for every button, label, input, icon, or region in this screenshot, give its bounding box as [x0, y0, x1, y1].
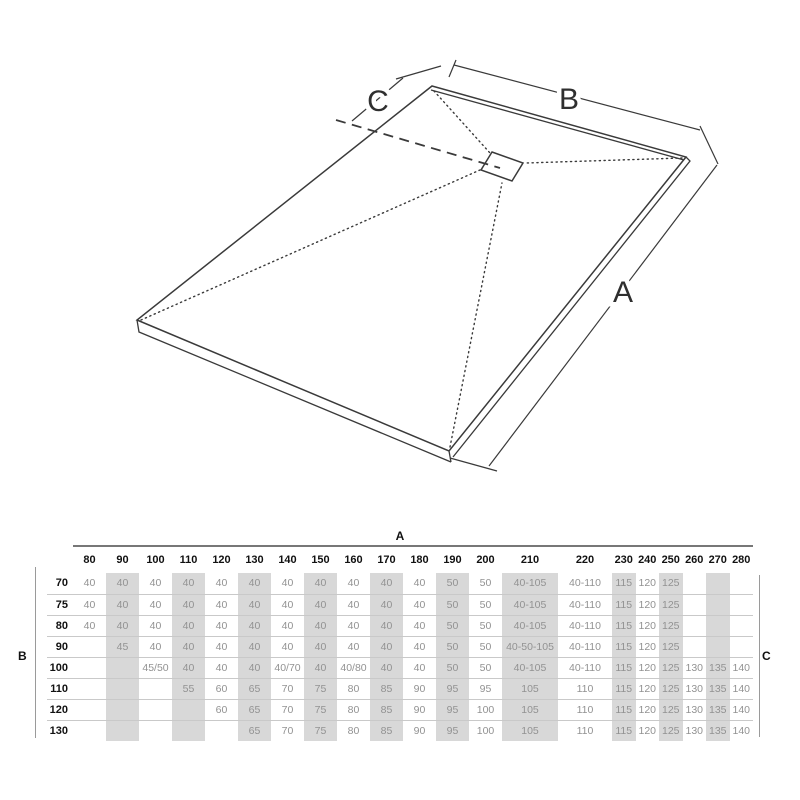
cell-75-110: 40 — [172, 594, 205, 615]
cell-110-180: 90 — [403, 678, 436, 699]
cell-70-210: 40-105 — [502, 573, 558, 594]
column-header-220: 220 — [558, 546, 612, 573]
cell-120-100 — [139, 699, 172, 720]
column-header-150: 150 — [304, 546, 337, 573]
cell-100-220: 40-110 — [558, 657, 612, 678]
dimension-b-tick — [449, 60, 456, 77]
cell-90-130: 40 — [238, 636, 271, 657]
cell-75-140: 40 — [271, 594, 304, 615]
cell-100-190: 50 — [436, 657, 469, 678]
cell-70-230: 115 — [612, 573, 636, 594]
cell-130-270: 135 — [706, 720, 730, 741]
cell-90-240: 120 — [636, 636, 660, 657]
cell-90-210: 40-50-105 — [502, 636, 558, 657]
column-header-100: 100 — [139, 546, 172, 573]
column-header-140: 140 — [271, 546, 304, 573]
column-header-280: 280 — [730, 546, 754, 573]
cell-110-170: 85 — [370, 678, 403, 699]
cell-80-280 — [730, 615, 754, 636]
cell-80-150: 40 — [304, 615, 337, 636]
cell-130-90 — [106, 720, 139, 741]
cell-110-160: 80 — [337, 678, 370, 699]
cell-110-220: 110 — [558, 678, 612, 699]
cell-70-190: 50 — [436, 573, 469, 594]
cell-80-170: 40 — [370, 615, 403, 636]
cell-130-200: 100 — [469, 720, 502, 741]
cell-90-170: 40 — [370, 636, 403, 657]
cell-120-250: 125 — [659, 699, 683, 720]
cell-80-130: 40 — [238, 615, 271, 636]
row-header-70: 70 — [47, 573, 73, 594]
column-header-80: 80 — [73, 546, 106, 573]
cell-130-110 — [172, 720, 205, 741]
cell-110-270: 135 — [706, 678, 730, 699]
cell-100-180: 40 — [403, 657, 436, 678]
cell-120-220: 110 — [558, 699, 612, 720]
cell-90-250: 125 — [659, 636, 683, 657]
cell-120-160: 80 — [337, 699, 370, 720]
diagram-label-b: B — [559, 83, 579, 116]
table-row-90: 9045404040404040404040505040-50-10540-11… — [47, 636, 753, 657]
cell-70-250: 125 — [659, 573, 683, 594]
cell-100-270: 135 — [706, 657, 730, 678]
cell-70-220: 40-110 — [558, 573, 612, 594]
table-row-100: 10045/5040404040/704040/804040505040-105… — [47, 657, 753, 678]
table-header-row: 8090100110120130140150160170180190200210… — [47, 546, 753, 573]
cell-90-260 — [683, 636, 707, 657]
diagram-label-c: C — [367, 85, 389, 118]
cell-75-80: 40 — [73, 594, 106, 615]
cell-75-240: 120 — [636, 594, 660, 615]
cell-120-120: 60 — [205, 699, 238, 720]
cell-75-90: 40 — [106, 594, 139, 615]
cell-100-150: 40 — [304, 657, 337, 678]
cell-80-110: 40 — [172, 615, 205, 636]
cell-75-260 — [683, 594, 707, 615]
column-header-200: 200 — [469, 546, 502, 573]
cell-110-110: 55 — [172, 678, 205, 699]
cell-130-260: 130 — [683, 720, 707, 741]
table-row-75: 754040404040404040404040505040-10540-110… — [47, 594, 753, 615]
cell-130-210: 105 — [502, 720, 558, 741]
column-header-160: 160 — [337, 546, 370, 573]
cell-120-170: 85 — [370, 699, 403, 720]
cell-130-80 — [73, 720, 106, 741]
cell-110-80 — [73, 678, 106, 699]
cell-100-80 — [73, 657, 106, 678]
cell-70-170: 40 — [370, 573, 403, 594]
cell-70-200: 50 — [469, 573, 502, 594]
cell-100-250: 125 — [659, 657, 683, 678]
table-corner-cell — [47, 546, 73, 573]
cell-75-250: 125 — [659, 594, 683, 615]
cell-100-90 — [106, 657, 139, 678]
cell-90-110: 40 — [172, 636, 205, 657]
cell-110-150: 75 — [304, 678, 337, 699]
cell-130-170: 85 — [370, 720, 403, 741]
column-header-130: 130 — [238, 546, 271, 573]
cell-75-270 — [706, 594, 730, 615]
cell-120-140: 70 — [271, 699, 304, 720]
column-header-240: 240 — [636, 546, 660, 573]
shower-tray-diagram: C B A — [0, 0, 800, 520]
table-row-70: 704040404040404040404040505040-10540-110… — [47, 573, 753, 594]
cell-90-90: 45 — [106, 636, 139, 657]
cell-70-280 — [730, 573, 754, 594]
cell-70-180: 40 — [403, 573, 436, 594]
cell-80-180: 40 — [403, 615, 436, 636]
cell-120-150: 75 — [304, 699, 337, 720]
cell-100-170: 40 — [370, 657, 403, 678]
cell-80-80: 40 — [73, 615, 106, 636]
cell-100-160: 40/80 — [337, 657, 370, 678]
cell-75-200: 50 — [469, 594, 502, 615]
cell-110-230: 115 — [612, 678, 636, 699]
cell-90-180: 40 — [403, 636, 436, 657]
column-header-230: 230 — [612, 546, 636, 573]
table-row-130: 1306570758085909510010511011512012513013… — [47, 720, 753, 741]
cell-75-150: 40 — [304, 594, 337, 615]
cell-100-200: 50 — [469, 657, 502, 678]
axis-b-bracket — [35, 567, 36, 738]
cell-110-140: 70 — [271, 678, 304, 699]
cell-120-200: 100 — [469, 699, 502, 720]
column-header-260: 260 — [683, 546, 707, 573]
column-header-180: 180 — [403, 546, 436, 573]
cell-130-140: 70 — [271, 720, 304, 741]
cell-70-110: 40 — [172, 573, 205, 594]
cell-80-160: 40 — [337, 615, 370, 636]
cell-100-140: 40/70 — [271, 657, 304, 678]
row-header-100: 100 — [47, 657, 73, 678]
column-header-250: 250 — [659, 546, 683, 573]
cell-120-210: 105 — [502, 699, 558, 720]
cell-75-170: 40 — [370, 594, 403, 615]
dimension-b-a-extension — [700, 126, 718, 164]
cell-90-160: 40 — [337, 636, 370, 657]
cell-80-270 — [706, 615, 730, 636]
cell-110-120: 60 — [205, 678, 238, 699]
cell-70-120: 40 — [205, 573, 238, 594]
table-axis-a-label: A — [47, 529, 753, 543]
cell-75-280 — [730, 594, 754, 615]
cell-120-80 — [73, 699, 106, 720]
cell-130-100 — [139, 720, 172, 741]
cell-100-100: 45/50 — [139, 657, 172, 678]
cell-80-260 — [683, 615, 707, 636]
column-header-190: 190 — [436, 546, 469, 573]
cell-130-190: 95 — [436, 720, 469, 741]
cell-100-260: 130 — [683, 657, 707, 678]
cell-110-210: 105 — [502, 678, 558, 699]
cell-80-100: 40 — [139, 615, 172, 636]
cell-75-130: 40 — [238, 594, 271, 615]
cell-90-120: 40 — [205, 636, 238, 657]
cell-80-210: 40-105 — [502, 615, 558, 636]
cell-90-80 — [73, 636, 106, 657]
cell-100-280: 140 — [730, 657, 754, 678]
cell-90-150: 40 — [304, 636, 337, 657]
cell-110-130: 65 — [238, 678, 271, 699]
cell-130-120 — [205, 720, 238, 741]
cell-110-190: 95 — [436, 678, 469, 699]
cell-70-240: 120 — [636, 573, 660, 594]
cell-75-190: 50 — [436, 594, 469, 615]
cell-120-130: 65 — [238, 699, 271, 720]
cell-110-250: 125 — [659, 678, 683, 699]
cell-130-220: 110 — [558, 720, 612, 741]
cell-120-190: 95 — [436, 699, 469, 720]
cell-130-130: 65 — [238, 720, 271, 741]
cell-80-220: 40-110 — [558, 615, 612, 636]
cell-70-100: 40 — [139, 573, 172, 594]
cell-100-230: 115 — [612, 657, 636, 678]
column-header-210: 210 — [502, 546, 558, 573]
cell-120-110 — [172, 699, 205, 720]
cell-90-100: 40 — [139, 636, 172, 657]
row-header-80: 80 — [47, 615, 73, 636]
cell-80-250: 125 — [659, 615, 683, 636]
cell-130-240: 120 — [636, 720, 660, 741]
cell-120-260: 130 — [683, 699, 707, 720]
table-row-80: 804040404040404040404040505040-10540-110… — [47, 615, 753, 636]
cell-110-260: 130 — [683, 678, 707, 699]
column-header-270: 270 — [706, 546, 730, 573]
cell-90-200: 50 — [469, 636, 502, 657]
cell-130-150: 75 — [304, 720, 337, 741]
column-header-90: 90 — [106, 546, 139, 573]
cell-100-110: 40 — [172, 657, 205, 678]
cell-80-240: 120 — [636, 615, 660, 636]
cell-120-280: 140 — [730, 699, 754, 720]
table-row-120: 1206065707580859095100105110115120125130… — [47, 699, 753, 720]
cell-70-160: 40 — [337, 573, 370, 594]
cell-75-100: 40 — [139, 594, 172, 615]
axis-c-bracket — [759, 575, 760, 737]
cell-70-130: 40 — [238, 573, 271, 594]
cell-70-150: 40 — [304, 573, 337, 594]
diagram-label-a: A — [613, 276, 633, 309]
cell-80-90: 40 — [106, 615, 139, 636]
table-row-110: 1105560657075808590959510511011512012513… — [47, 678, 753, 699]
cell-90-190: 50 — [436, 636, 469, 657]
column-header-170: 170 — [370, 546, 403, 573]
dimensions-table: 8090100110120130140150160170180190200210… — [47, 545, 753, 741]
cell-120-90 — [106, 699, 139, 720]
cell-75-120: 40 — [205, 594, 238, 615]
dimension-c-tick — [396, 66, 441, 79]
cell-100-210: 40-105 — [502, 657, 558, 678]
cell-110-90 — [106, 678, 139, 699]
row-header-120: 120 — [47, 699, 73, 720]
cell-90-280 — [730, 636, 754, 657]
table-axis-b-label: B — [18, 649, 27, 663]
column-header-110: 110 — [172, 546, 205, 573]
cell-110-280: 140 — [730, 678, 754, 699]
cell-80-190: 50 — [436, 615, 469, 636]
cell-120-230: 115 — [612, 699, 636, 720]
cell-90-220: 40-110 — [558, 636, 612, 657]
cell-70-270 — [706, 573, 730, 594]
cell-70-80: 40 — [73, 573, 106, 594]
cell-80-230: 115 — [612, 615, 636, 636]
cell-130-160: 80 — [337, 720, 370, 741]
cell-75-220: 40-110 — [558, 594, 612, 615]
cell-130-250: 125 — [659, 720, 683, 741]
cell-70-140: 40 — [271, 573, 304, 594]
cell-130-280: 140 — [730, 720, 754, 741]
cell-100-120: 40 — [205, 657, 238, 678]
row-header-90: 90 — [47, 636, 73, 657]
cell-90-140: 40 — [271, 636, 304, 657]
size-table-section: A B C 8090100110120130140150160170180190… — [0, 525, 800, 775]
cell-120-240: 120 — [636, 699, 660, 720]
cell-130-180: 90 — [403, 720, 436, 741]
cell-75-180: 40 — [403, 594, 436, 615]
cell-90-230: 115 — [612, 636, 636, 657]
cell-75-210: 40-105 — [502, 594, 558, 615]
cell-110-240: 120 — [636, 678, 660, 699]
cell-75-160: 40 — [337, 594, 370, 615]
cell-100-130: 40 — [238, 657, 271, 678]
cell-70-260 — [683, 573, 707, 594]
cell-90-270 — [706, 636, 730, 657]
cell-120-270: 135 — [706, 699, 730, 720]
cell-80-140: 40 — [271, 615, 304, 636]
row-header-75: 75 — [47, 594, 73, 615]
cell-80-120: 40 — [205, 615, 238, 636]
column-header-120: 120 — [205, 546, 238, 573]
cell-120-180: 90 — [403, 699, 436, 720]
cell-75-230: 115 — [612, 594, 636, 615]
table-axis-c-label: C — [762, 649, 771, 663]
row-header-130: 130 — [47, 720, 73, 741]
row-header-110: 110 — [47, 678, 73, 699]
cell-110-200: 95 — [469, 678, 502, 699]
cell-70-90: 40 — [106, 573, 139, 594]
cell-80-200: 50 — [469, 615, 502, 636]
cell-100-240: 120 — [636, 657, 660, 678]
cell-130-230: 115 — [612, 720, 636, 741]
cell-110-100 — [139, 678, 172, 699]
